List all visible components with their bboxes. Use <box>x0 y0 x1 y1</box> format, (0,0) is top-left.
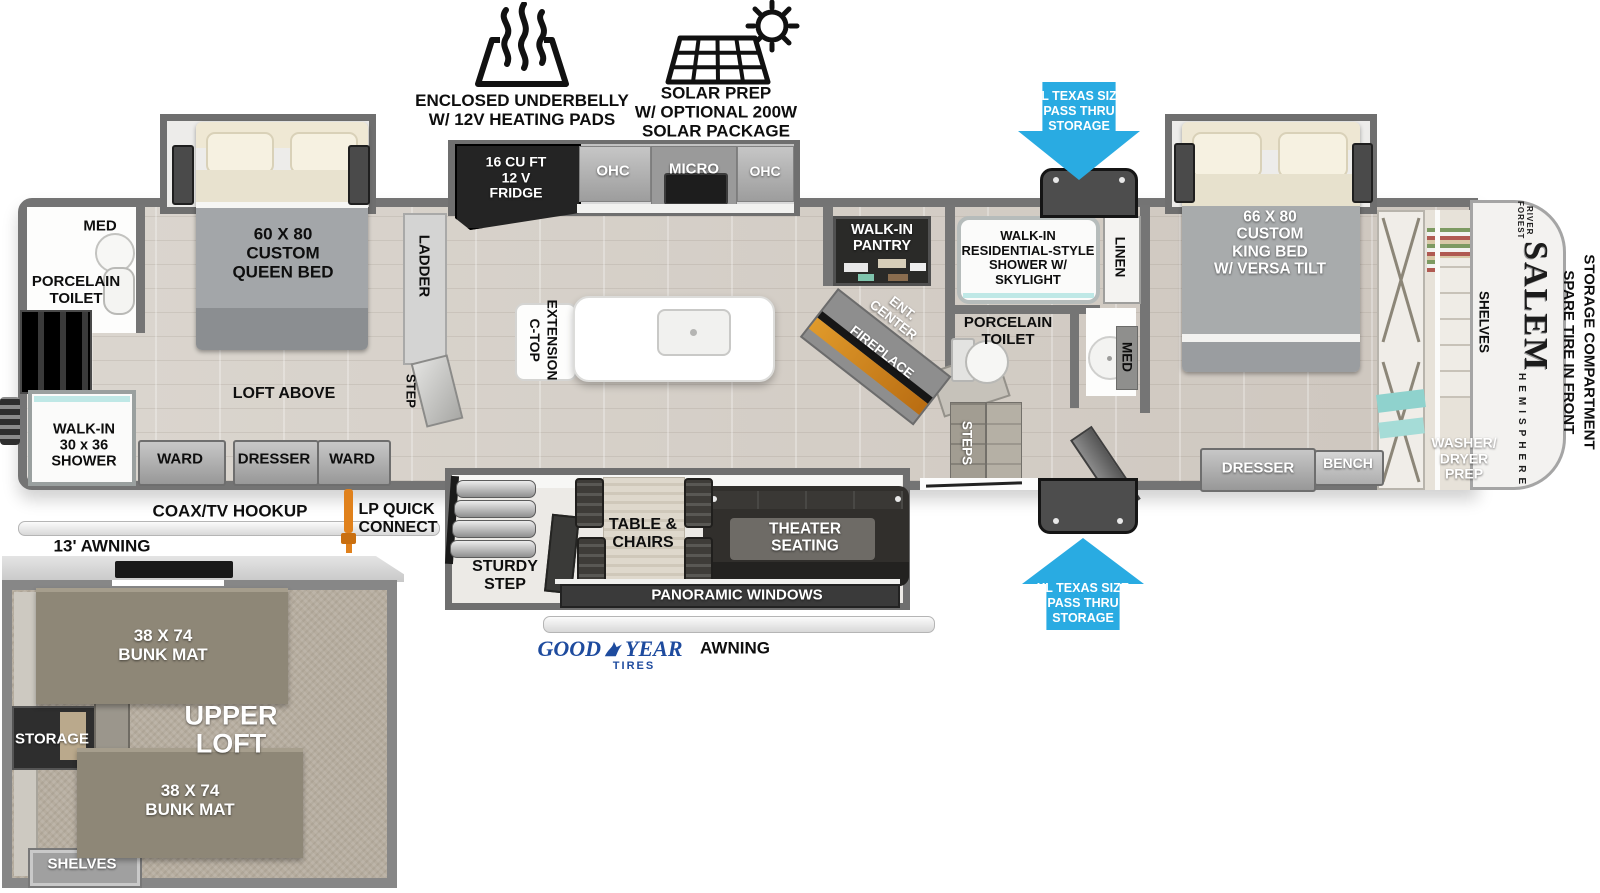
bunk-bottom-label: 38 X 74 BUNK MAT <box>145 781 234 819</box>
fridge-label: 16 CU FT 12 V FRIDGE <box>486 154 547 201</box>
lp-connector-tip <box>346 544 352 553</box>
panoramic-windows-label: PANORAMIC WINDOWS <box>651 588 822 605</box>
queen-window-left <box>172 145 194 205</box>
ohc-left-label: OHC <box>596 164 629 181</box>
rear-wardrobe <box>20 310 92 394</box>
pass-thru-bottom-label: XL TEXAS SIZE PASS THRU STORAGE <box>1022 581 1144 626</box>
goodyear-good: GOOD <box>537 636 601 662</box>
rear-shower-label: WALK-IN 30 x 36 SHOWER <box>51 422 116 471</box>
queen-window-right <box>348 145 370 205</box>
floorplan-canvas: ENCLOSED UNDERBELLY W/ 12V HEATING PADS … <box>0 0 1600 893</box>
brand-hemisphere: HEMISPHERE <box>1516 373 1554 489</box>
queen-bed-label: 60 X 80 CUSTOM QUEEN BED <box>232 224 333 281</box>
mid-toilet-label: PORCELAIN TOILET <box>964 315 1052 349</box>
front-shelves-label: SHELVES <box>1476 291 1491 353</box>
pantry-label: WALK-IN PANTRY <box>851 222 913 254</box>
lp-label: LP QUICK CONNECT <box>358 501 437 537</box>
goodyear-tires-label: TIRES <box>613 660 655 672</box>
med-label: MED <box>1119 342 1134 372</box>
lp-connector-icon <box>344 489 353 533</box>
ward1-label: WARD <box>157 452 203 469</box>
upper-loft-title: UPPER LOFT <box>184 702 277 759</box>
bench-label: BENCH <box>1323 456 1373 472</box>
solar-panel-sun-icon <box>660 0 800 92</box>
loft-shelves-label: SHELVES <box>48 857 117 874</box>
loft-storage-label: STORAGE <box>15 732 89 749</box>
step-label: STEP <box>403 374 418 408</box>
brand-forest-river: FOREST RIVER <box>1516 201 1554 239</box>
lp-connector-cap <box>341 533 356 544</box>
sturdy-step-label: STURDY STEP <box>472 558 538 594</box>
island-sink <box>657 309 731 356</box>
awning-13-label: 13' AWNING <box>54 536 151 555</box>
ctop-label: C-TOP EXTENSION <box>526 300 561 381</box>
brand-salem: SALEM <box>1516 241 1554 372</box>
entry-door-opening <box>920 478 1038 490</box>
steps-right <box>986 402 1022 486</box>
ward2-label: WARD <box>329 452 375 469</box>
bunk-top-label: 38 X 74 BUNK MAT <box>118 626 207 664</box>
ladder-label: LADDER <box>415 235 432 298</box>
awning-rail-door-side <box>543 616 935 633</box>
spare-tire-label: SPARE TIRE IN FRONT STORAGE COMPARTMENT <box>1558 254 1599 449</box>
arrow-up-icon: XL TEXAS SIZE PASS THRU STORAGE <box>1022 538 1144 630</box>
heat-waves-icon <box>462 2 582 90</box>
goodyear-logo: GOOD YEAR <box>540 636 680 662</box>
counter-edge <box>577 204 794 213</box>
awning-label: AWNING <box>700 638 770 657</box>
coax-label: COAX/TV HOOKUP <box>153 501 308 520</box>
kitchen-island <box>573 296 775 382</box>
steps-label: STEPS <box>959 421 974 465</box>
rear-toilet-label: PORCELAIN TOILET <box>32 274 120 308</box>
micro-label: MICRO <box>669 162 719 179</box>
wingfoot-icon <box>603 639 623 659</box>
goodyear-year: YEAR <box>625 636 682 662</box>
loft-roof-vent <box>115 561 233 578</box>
king-window-left <box>1174 143 1195 203</box>
ohc-right-label: OHC <box>749 164 780 180</box>
front-dresser-label: DRESSER <box>1222 461 1295 478</box>
pass-thru-top-label: XL TEXAS SIZE PASS THRU STORAGE <box>1018 89 1140 134</box>
loft-above-label: LOFT ABOVE <box>233 385 336 403</box>
arrow-down-icon: XL TEXAS SIZE PASS THRU STORAGE <box>1018 82 1140 180</box>
linen-label: LINEN <box>1112 237 1127 278</box>
king-bed-label: 66 X 80 CUSTOM KING BED W/ VERSA TILT <box>1214 208 1326 277</box>
theater-seating-label: THEATER SEATING <box>769 521 841 556</box>
table-chairs-label: TABLE & CHAIRS <box>609 516 677 552</box>
loft-roof-vent-trim <box>112 580 224 586</box>
brand-logo: FOREST RIVER SALEM HEMISPHERE <box>1505 215 1565 475</box>
rear-dresser-label: DRESSER <box>238 452 311 469</box>
pass-thru-compartment-top <box>1040 168 1138 218</box>
rear-med-label: MED <box>83 219 116 236</box>
solar-label: SOLAR PREP W/ OPTIONAL 200W SOLAR PACKAG… <box>635 83 797 140</box>
closet-mirror-doors <box>1377 210 1425 490</box>
residential-shower-label: WALK-IN RESIDENTIAL-STYLE SHOWER W/ SKYL… <box>962 229 1095 287</box>
underbelly-label: ENCLOSED UNDERBELLY W/ 12V HEATING PADS <box>415 91 629 129</box>
rear-ladder-icon <box>0 397 20 445</box>
washer-dryer-label: WASHER/ DRYER PREP <box>1431 435 1496 482</box>
pass-thru-compartment-bottom <box>1038 478 1138 534</box>
king-window-right <box>1352 143 1373 203</box>
